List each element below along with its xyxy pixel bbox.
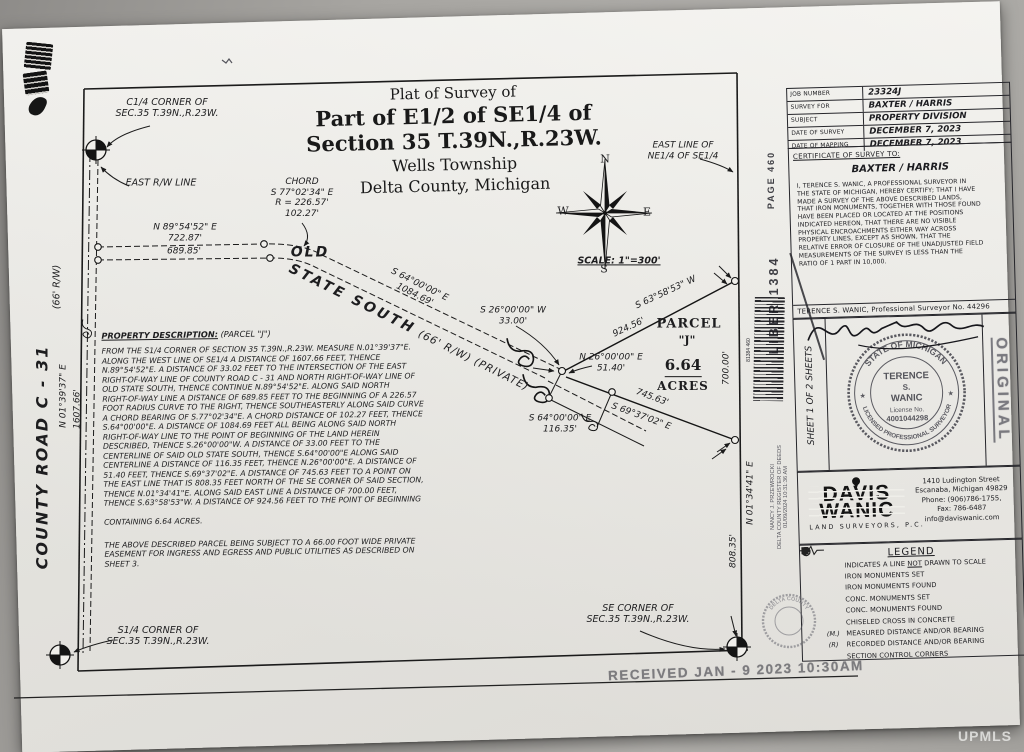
info-value: DECEMBER 7, 2023 [864, 124, 961, 137]
info-table: JOB NUMBER23324JSURVEY FORBAXTER / HARRI… [786, 82, 1012, 149]
bearing-n26: N 26°00'00" E 51.40' [579, 352, 643, 373]
se-corner-label: SE CORNER OF SEC.35 T.39N.,R.23W. [586, 603, 689, 625]
watermark: UPMLS [958, 728, 1012, 744]
parcel-letter: "J" [679, 335, 696, 348]
stray-pen-mark [222, 59, 232, 63]
road-name-old: OLD [291, 245, 329, 262]
property-description: PROPERTY DESCRIPTION: (PARCEL "J") FROM … [101, 325, 496, 568]
register-office: DELTA COUNTY REGISTER OF DEEDS [777, 445, 784, 549]
circle-open-icon [819, 577, 845, 578]
chord-label: CHORD S 77°02'34" E R = 226.57' 102.27' [271, 177, 334, 219]
firm-logo-line2: WANIC [809, 501, 905, 521]
svg-text:★: ★ [947, 389, 954, 397]
section-corner-s14 [46, 641, 74, 669]
bearing-n895452: N 89°54'52" E 722.87' [153, 222, 217, 243]
county-road-rw-label: (66' R/W) [51, 265, 62, 309]
page-stamp: PAGE 460 [766, 151, 776, 209]
description-body: FROM THE S1/4 CORNER OF SECTION 35 T.39N… [102, 341, 496, 508]
scanned-plat-photo: Plat of Survey of Part of E1/2 of SE1/4 … [0, 0, 1024, 752]
firm-box: DAVIS WANIC LAND SURVEYORS, P.C. 1410 Lu… [797, 466, 1023, 545]
info-label: JOB NUMBER [787, 87, 863, 101]
delta-county-seal-icon: DELTA COUNTY [760, 592, 818, 650]
barcode-digits: 81384 460 [746, 338, 752, 362]
legend-item-text: IRON MONUMENTS SET [845, 570, 925, 580]
compass-n-label: N [600, 154, 610, 167]
svg-text:4001044298: 4001044298 [886, 413, 928, 423]
description-heading-text: PROPERTY DESCRIPTION: [101, 329, 218, 341]
compass-w-label: W [557, 206, 568, 219]
distance-689-85: 689.85' [167, 247, 201, 258]
s14-corner-label: S1/4 CORNER OF SEC.35 T.39N.,R.23W. [106, 625, 209, 647]
sheet-bottom-rule [14, 676, 858, 698]
square-filled-icon [820, 611, 846, 612]
scale-note: SCALE: 1"=300' [577, 255, 660, 266]
bearing-s26: S 26°00'00" W 33.00' [480, 305, 546, 326]
legend-item-text: IRON MONUMENTS FOUND [845, 581, 937, 592]
section-corner-se [723, 633, 751, 661]
county-road-label: COUNTY ROAD C - 31 [34, 345, 53, 570]
legend-symbol-text: (M.) [820, 630, 846, 639]
legend-box: LEGEND INDICATES A LINE NOT DRAWN TO SCA… [799, 539, 1024, 662]
compass-e-label: E [643, 207, 651, 220]
circle-filled-icon [819, 588, 845, 589]
legend-rows: INDICATES A LINE NOT DRAWN TO SCALEIRON … [800, 555, 1024, 664]
description-easement: THE ABOVE DESCRIBED PARCEL BEING SUBJECT… [104, 535, 496, 569]
info-label: SUBJECT [788, 113, 864, 127]
bearing-s64-centerline: S 64°00'00" E 116.35' [529, 413, 592, 434]
distance-700: 700.00' [722, 351, 733, 385]
description-heading-suffix: (PARCEL "J") [218, 328, 271, 339]
info-value: 23324J [863, 87, 901, 98]
legend-symbol-text: (R) [821, 641, 847, 650]
distance-808-35: 808.35' [729, 534, 740, 568]
bearing-n013937: N 01°39'37" E [59, 364, 70, 428]
certificate-heading: CERTIFICATE OF SURVEY TO: [793, 147, 1011, 161]
svg-text:TERENCE: TERENCE [883, 370, 929, 382]
svg-text:★: ★ [859, 392, 866, 400]
distance-1607-66: 1607.66' [73, 389, 84, 429]
county-road-lines [83, 152, 98, 654]
square-open-icon [819, 599, 845, 600]
surveyor-signature [799, 295, 1001, 359]
east-rw-line-label: EAST R/W LINE [126, 177, 197, 188]
svg-text:S.: S. [903, 383, 911, 392]
register-of-deeds-stamp: NANCY J. PRZEWROCKI DELTA COUNTY REGISTE… [770, 445, 790, 549]
sheet-count-note: SHEET 1 OF 2 SHEETS [804, 345, 817, 445]
info-label: SURVEY FOR [787, 100, 863, 114]
break-icon [818, 565, 844, 566]
svg-text:WANIC: WANIC [891, 392, 923, 404]
section-corner-c14 [82, 136, 110, 164]
info-value: BAXTER / HARRIS [863, 98, 952, 110]
east-line-ne14-label: EAST LINE OF NE1/4 OF SE1/4 [648, 140, 719, 161]
parcel-name: PARCEL [656, 316, 721, 331]
section-icon [821, 656, 847, 657]
firm-address: 1410 Ludington Street Escanaba, Michigan… [904, 475, 1019, 525]
title-panel: JOB NUMBER23324JSURVEY FORBAXTER / HARRI… [786, 80, 1024, 664]
recording-barcode [753, 297, 785, 402]
info-value: PROPERTY DIVISION [864, 111, 967, 124]
bearing-n013441: N 01°34'41" E [746, 461, 757, 525]
register-name: NANCY J. PRZEWROCKI [770, 445, 777, 549]
description-containing: CONTAINING 6.64 ACRES. [104, 512, 496, 526]
circle-cross-icon [820, 622, 846, 623]
info-label: DATE OF SURVEY [788, 126, 864, 140]
ink-smudge [24, 42, 54, 71]
firm-logo: DAVIS WANIC LAND SURVEYORS, P.C. [808, 476, 905, 532]
ink-smudge [23, 70, 50, 95]
certificate-box: CERTIFICATE OF SURVEY TO: BAXTER / HARRI… [788, 142, 1017, 319]
parcel-acreage-unit: ACRES [657, 379, 709, 393]
legend-item-text: CONC. MONUMENTS FOUND [846, 604, 943, 615]
legend-item-text: CONC. MONUMENTS SET [845, 593, 930, 603]
certificate-body: I, TERENCE S. WANIC, A PROFESSIONAL SURV… [797, 177, 1009, 268]
certificate-names: BAXTER / HARRIS [789, 160, 1011, 177]
parcel-acreage: 6.64 [665, 357, 702, 377]
register-datetime: 01/09/2024 10:31:36 AM [783, 445, 790, 549]
c14-corner-label: C1/4 CORNER OF SEC.35 T.39N.,R.23W. [115, 97, 218, 119]
